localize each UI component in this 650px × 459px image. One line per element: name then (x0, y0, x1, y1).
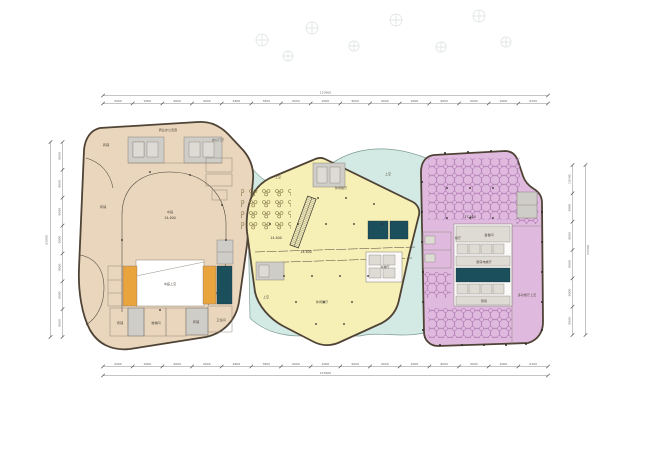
label-office-lobby: 办公门厅 (212, 137, 224, 142)
svg-text:9000: 9000 (58, 291, 62, 299)
svg-text:6600: 6600 (233, 362, 241, 366)
svg-text:9000: 9000 (381, 99, 389, 103)
tree-icon (349, 41, 359, 51)
svg-text:7800: 7800 (262, 99, 270, 103)
cafe-seating-area (241, 189, 291, 233)
kitchen-core (454, 224, 512, 306)
label-elevation: 17.400 (464, 215, 476, 219)
mep-shaft (390, 221, 408, 239)
svg-text:9000: 9000 (58, 263, 62, 271)
label-void: 上空 (275, 174, 281, 179)
dining-wing (421, 150, 543, 346)
escalator-shaft (203, 266, 216, 304)
svg-text:9000: 9000 (58, 319, 62, 327)
label-elevation: 14.400 (300, 250, 312, 254)
svg-text:9000: 9000 (173, 362, 181, 366)
svg-text:9000: 9000 (440, 99, 448, 103)
roof-trees (256, 10, 511, 61)
svg-text:9000: 9000 (58, 236, 62, 244)
dining-tables-top (428, 158, 520, 220)
label-shop: 商铺 (103, 142, 109, 147)
label-void: 上空 (385, 171, 391, 176)
tree-icon (501, 37, 511, 47)
dim-labels-left: 9000900090009000900090009000 (58, 152, 62, 327)
svg-text:9000: 9000 (322, 362, 330, 366)
dining-tables-bottom (428, 308, 512, 338)
svg-text:9000: 9000 (568, 204, 572, 212)
svg-text:6100: 6100 (529, 99, 537, 103)
label-shop: 商铺 (100, 204, 106, 209)
dim-labels-right: 1050090009000900090009000 (568, 174, 572, 324)
label-shop: 商铺 (193, 319, 199, 324)
svg-text:9000: 9000 (292, 362, 300, 366)
svg-text:9000: 9000 (381, 362, 389, 366)
stair-core (517, 192, 537, 218)
tree-icon (283, 51, 293, 61)
dim-labels-top: 4400900090009000660078009000900090009000… (114, 99, 537, 103)
svg-text:9000: 9000 (411, 362, 419, 366)
svg-text:7800: 7800 (262, 362, 270, 366)
mep-shaft (217, 266, 232, 304)
svg-text:10500: 10500 (568, 174, 572, 184)
tree-icon (306, 22, 318, 34)
escalator-shaft (123, 266, 137, 306)
svg-text:9000: 9000 (58, 208, 62, 216)
svg-text:9000: 9000 (568, 289, 572, 297)
label-hall-void: 多功能厅上空 (518, 292, 537, 297)
tree-icon (436, 42, 446, 52)
tree-icon (473, 10, 485, 22)
svg-text:9000: 9000 (203, 362, 211, 366)
label-kitchen-lobby: 厨房电梯厅 (476, 259, 491, 264)
svg-text:9000: 9000 (58, 152, 62, 160)
svg-text:9000: 9000 (440, 362, 448, 366)
svg-text:6100: 6100 (529, 362, 537, 366)
label-corridor: 商业办公走廊 (159, 127, 178, 132)
svg-text:9000: 9000 (470, 362, 478, 366)
label-void: 上空 (263, 294, 269, 299)
svg-text:9000: 9000 (470, 99, 478, 103)
label-atrium-void: 中庭上空 (164, 281, 176, 286)
label-elevation: 14.400 (164, 216, 176, 220)
svg-text:9000: 9000 (411, 99, 419, 103)
label-lift-lobby: 客梯厅 (380, 264, 389, 269)
tree-icon (390, 14, 402, 26)
label-shop: 商铺 (117, 320, 123, 325)
label-kitchen: 厨房 (481, 298, 487, 303)
dim-labels-bottom: 4400900090009000660078009000900090009000… (114, 362, 537, 366)
label-restaurant: 休闲餐厅 (335, 185, 347, 190)
svg-text:9000: 9000 (568, 317, 572, 325)
label-atrium: 中庭 (167, 209, 173, 214)
tree-icon (256, 34, 268, 46)
svg-text:4400: 4400 (114, 99, 122, 103)
dim-total-right: 55500 (586, 245, 590, 255)
dining-tables-left (424, 272, 451, 298)
floor-plan-page: 商业办公走廊 商铺 办公门厅 商铺 中庭 14.400 中庭上空 商铺 楼梯间 … (0, 0, 650, 459)
label-pantry: 备餐间 (484, 232, 493, 237)
stair-core (256, 262, 284, 280)
dim-total-top: 123900 (320, 91, 332, 95)
svg-text:9000: 9000 (58, 180, 62, 188)
label-restaurant: 休闲餐厅 (316, 299, 328, 304)
svg-text:9000: 9000 (568, 260, 572, 268)
svg-text:9000: 9000 (292, 99, 300, 103)
label-dining: 餐厅 (455, 235, 461, 240)
svg-text:9000: 9000 (203, 99, 211, 103)
svg-text:9000: 9000 (144, 362, 152, 366)
svg-text:6600: 6600 (233, 99, 241, 103)
svg-text:9000: 9000 (500, 99, 508, 103)
mep-shaft (368, 221, 388, 239)
svg-text:9000: 9000 (322, 99, 330, 103)
label-elevation: 14.400 (270, 236, 282, 240)
svg-text:9000: 9000 (500, 362, 508, 366)
dim-total-left: 63000 (45, 235, 49, 245)
stair-core (128, 137, 164, 163)
svg-text:9000: 9000 (351, 362, 359, 366)
svg-text:9000: 9000 (351, 99, 359, 103)
label-wc: 卫生间 (216, 317, 225, 322)
label-stair: 楼梯间 (151, 320, 160, 325)
stair-core (313, 163, 345, 187)
retail-office-wing (79, 122, 253, 349)
svg-text:9000: 9000 (144, 99, 152, 103)
svg-text:4400: 4400 (114, 362, 122, 366)
svg-text:9000: 9000 (568, 232, 572, 240)
floor-plan-drawing: 商业办公走廊 商铺 办公门厅 商铺 中庭 14.400 中庭上空 商铺 楼梯间 … (0, 0, 650, 459)
dim-total-bottom: 123900 (320, 371, 332, 375)
svg-text:9000: 9000 (173, 99, 181, 103)
